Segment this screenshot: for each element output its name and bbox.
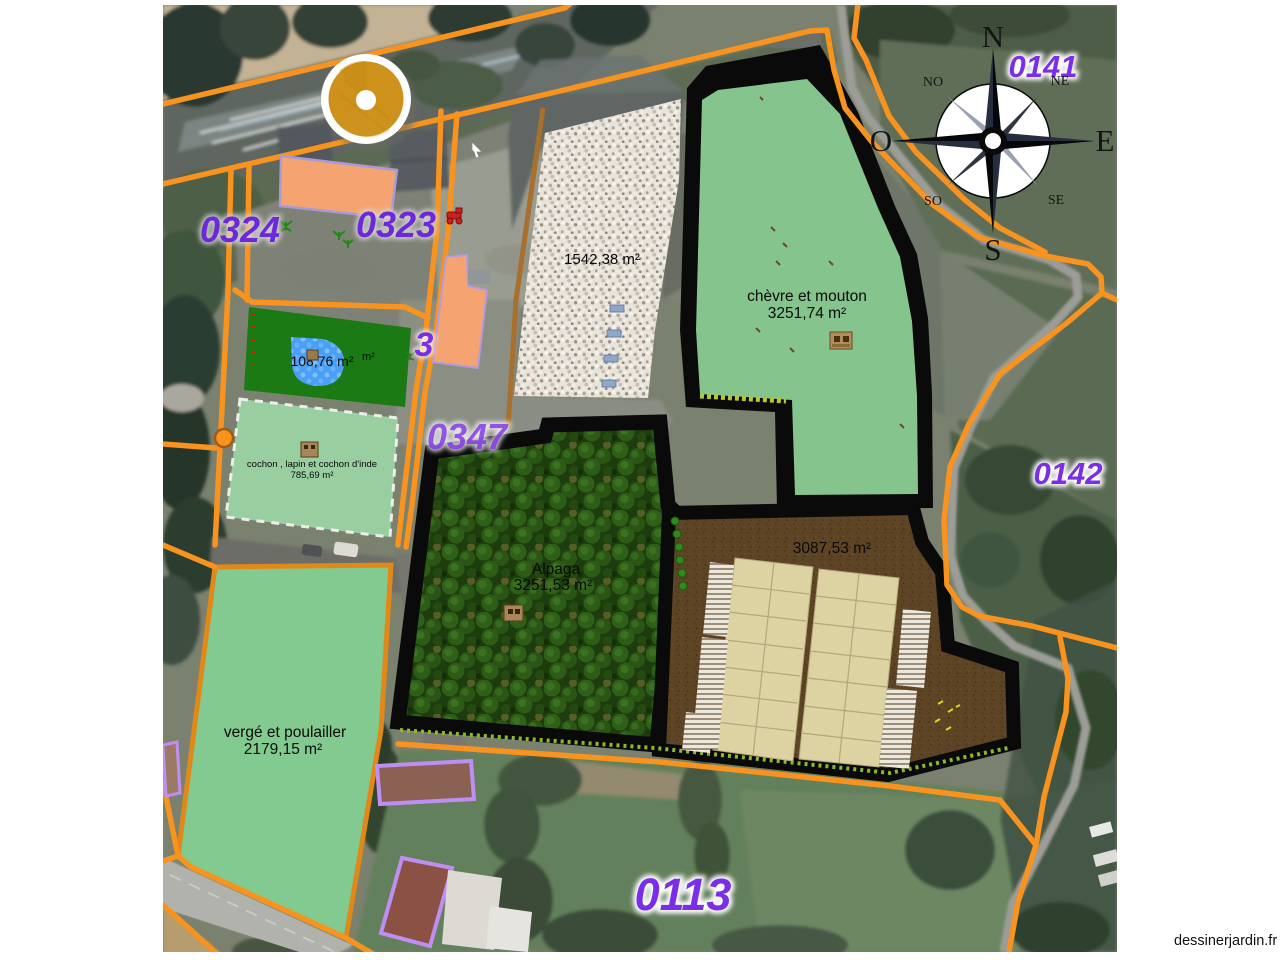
svg-text:S: S (984, 232, 1001, 267)
svg-text:108,76 m²: 108,76 m² (290, 353, 353, 369)
svg-text:Alpaga: Alpaga (532, 561, 581, 578)
svg-text:0142: 0142 (1034, 456, 1103, 491)
svg-text:NE: NE (1051, 74, 1070, 89)
svg-text:cochon , lapin et cochon d'ind: cochon , lapin et cochon d'inde (247, 459, 377, 470)
svg-text:m²: m² (362, 351, 375, 363)
svg-text:SE: SE (1048, 193, 1064, 208)
svg-text:vergé et poulailler: vergé et poulailler (224, 724, 346, 741)
svg-text:N: N (982, 19, 1004, 54)
svg-text:chèvre et mouton: chèvre et mouton (747, 288, 867, 305)
svg-text:3087,53 m²: 3087,53 m² (793, 540, 871, 557)
svg-text:2179,15 m²: 2179,15 m² (244, 741, 322, 758)
svg-text:1542,38 m²: 1542,38 m² (564, 251, 640, 268)
svg-text:E: E (1096, 123, 1115, 158)
svg-text:0113: 0113 (635, 869, 732, 920)
svg-text:O: O (870, 123, 892, 158)
svg-text:SO: SO (924, 194, 942, 209)
svg-text:785,69 m²: 785,69 m² (291, 470, 334, 481)
svg-text:NO: NO (923, 75, 943, 90)
svg-text:0324: 0324 (200, 209, 280, 250)
svg-text:3251,53 m²: 3251,53 m² (514, 577, 592, 594)
svg-text:3: 3 (415, 326, 434, 364)
svg-text:0323: 0323 (356, 204, 436, 245)
svg-text:3251,74 m²: 3251,74 m² (768, 305, 846, 322)
svg-text:0347: 0347 (427, 416, 509, 457)
